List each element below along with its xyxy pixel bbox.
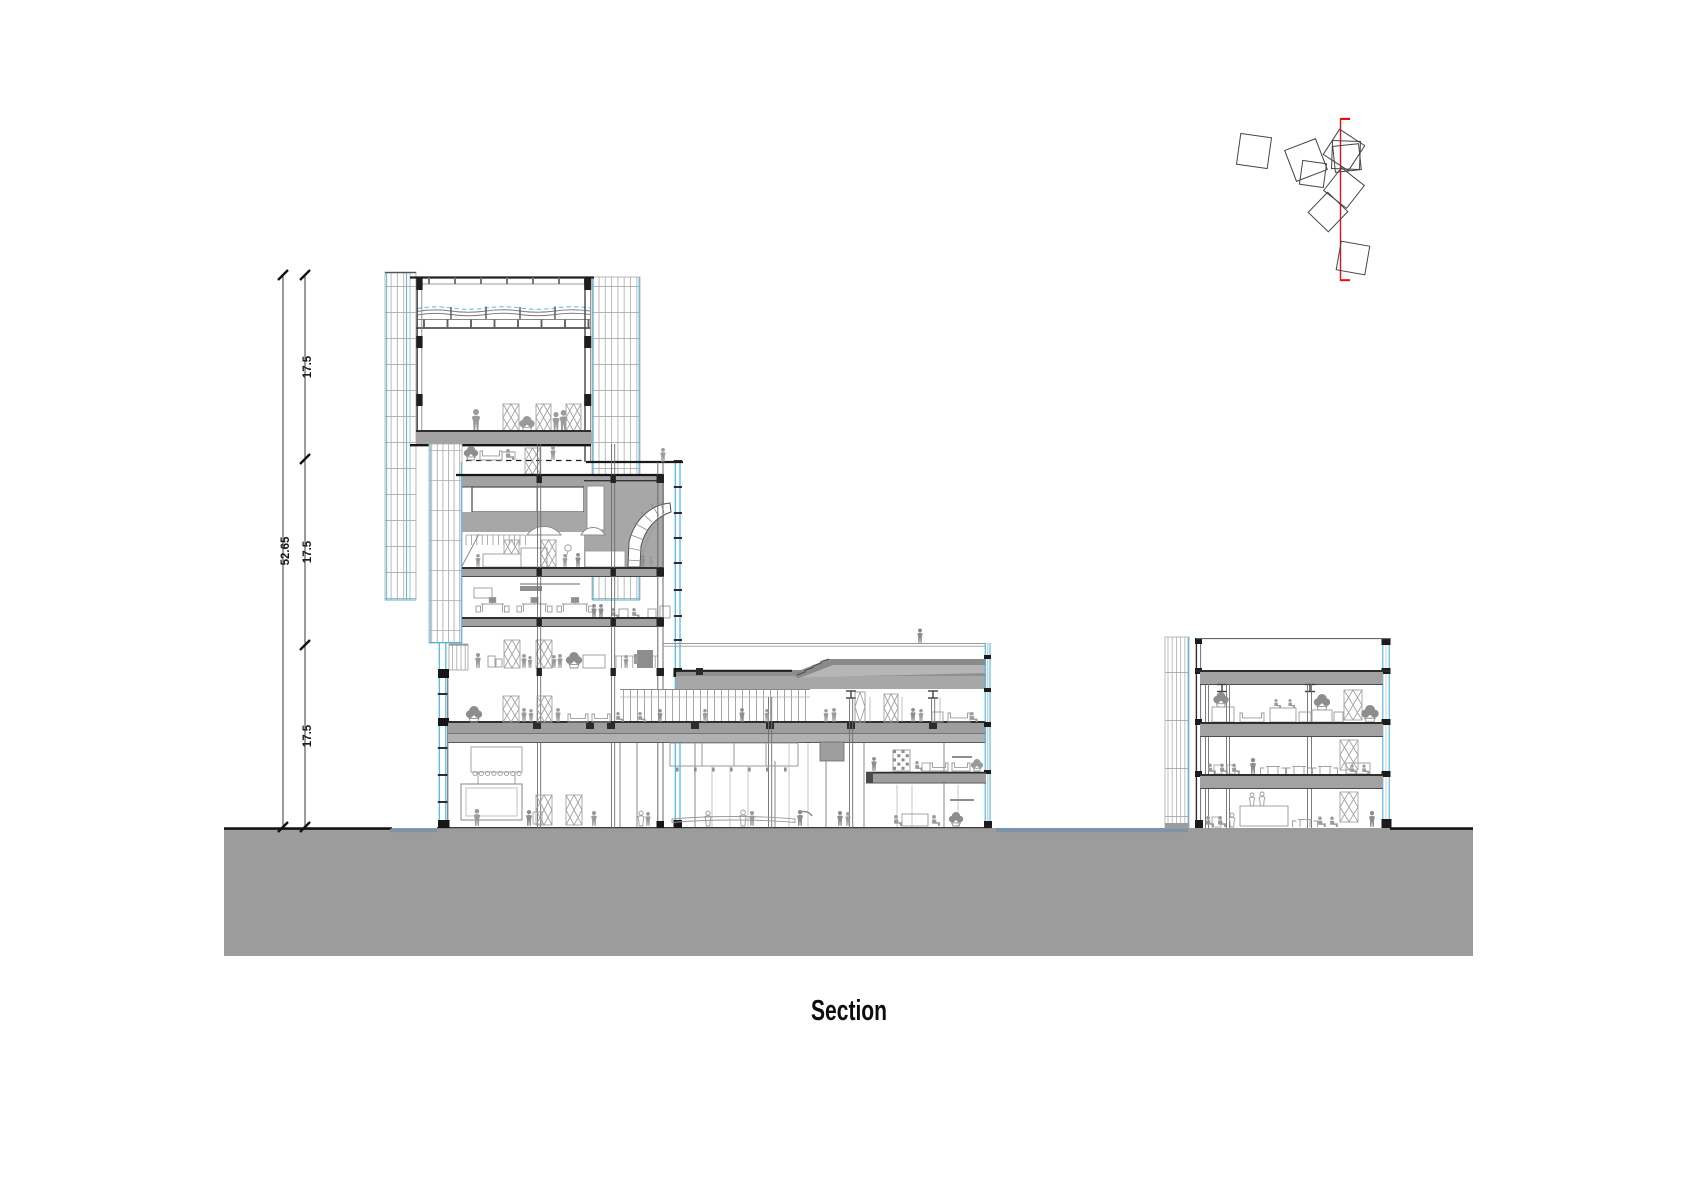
- svg-text:52.65: 52.65: [280, 536, 292, 565]
- svg-text:Section: Section: [811, 995, 887, 1027]
- svg-text:17.5: 17.5: [302, 540, 314, 563]
- svg-text:17.5: 17.5: [302, 355, 314, 378]
- svg-text:17.5: 17.5: [302, 724, 314, 747]
